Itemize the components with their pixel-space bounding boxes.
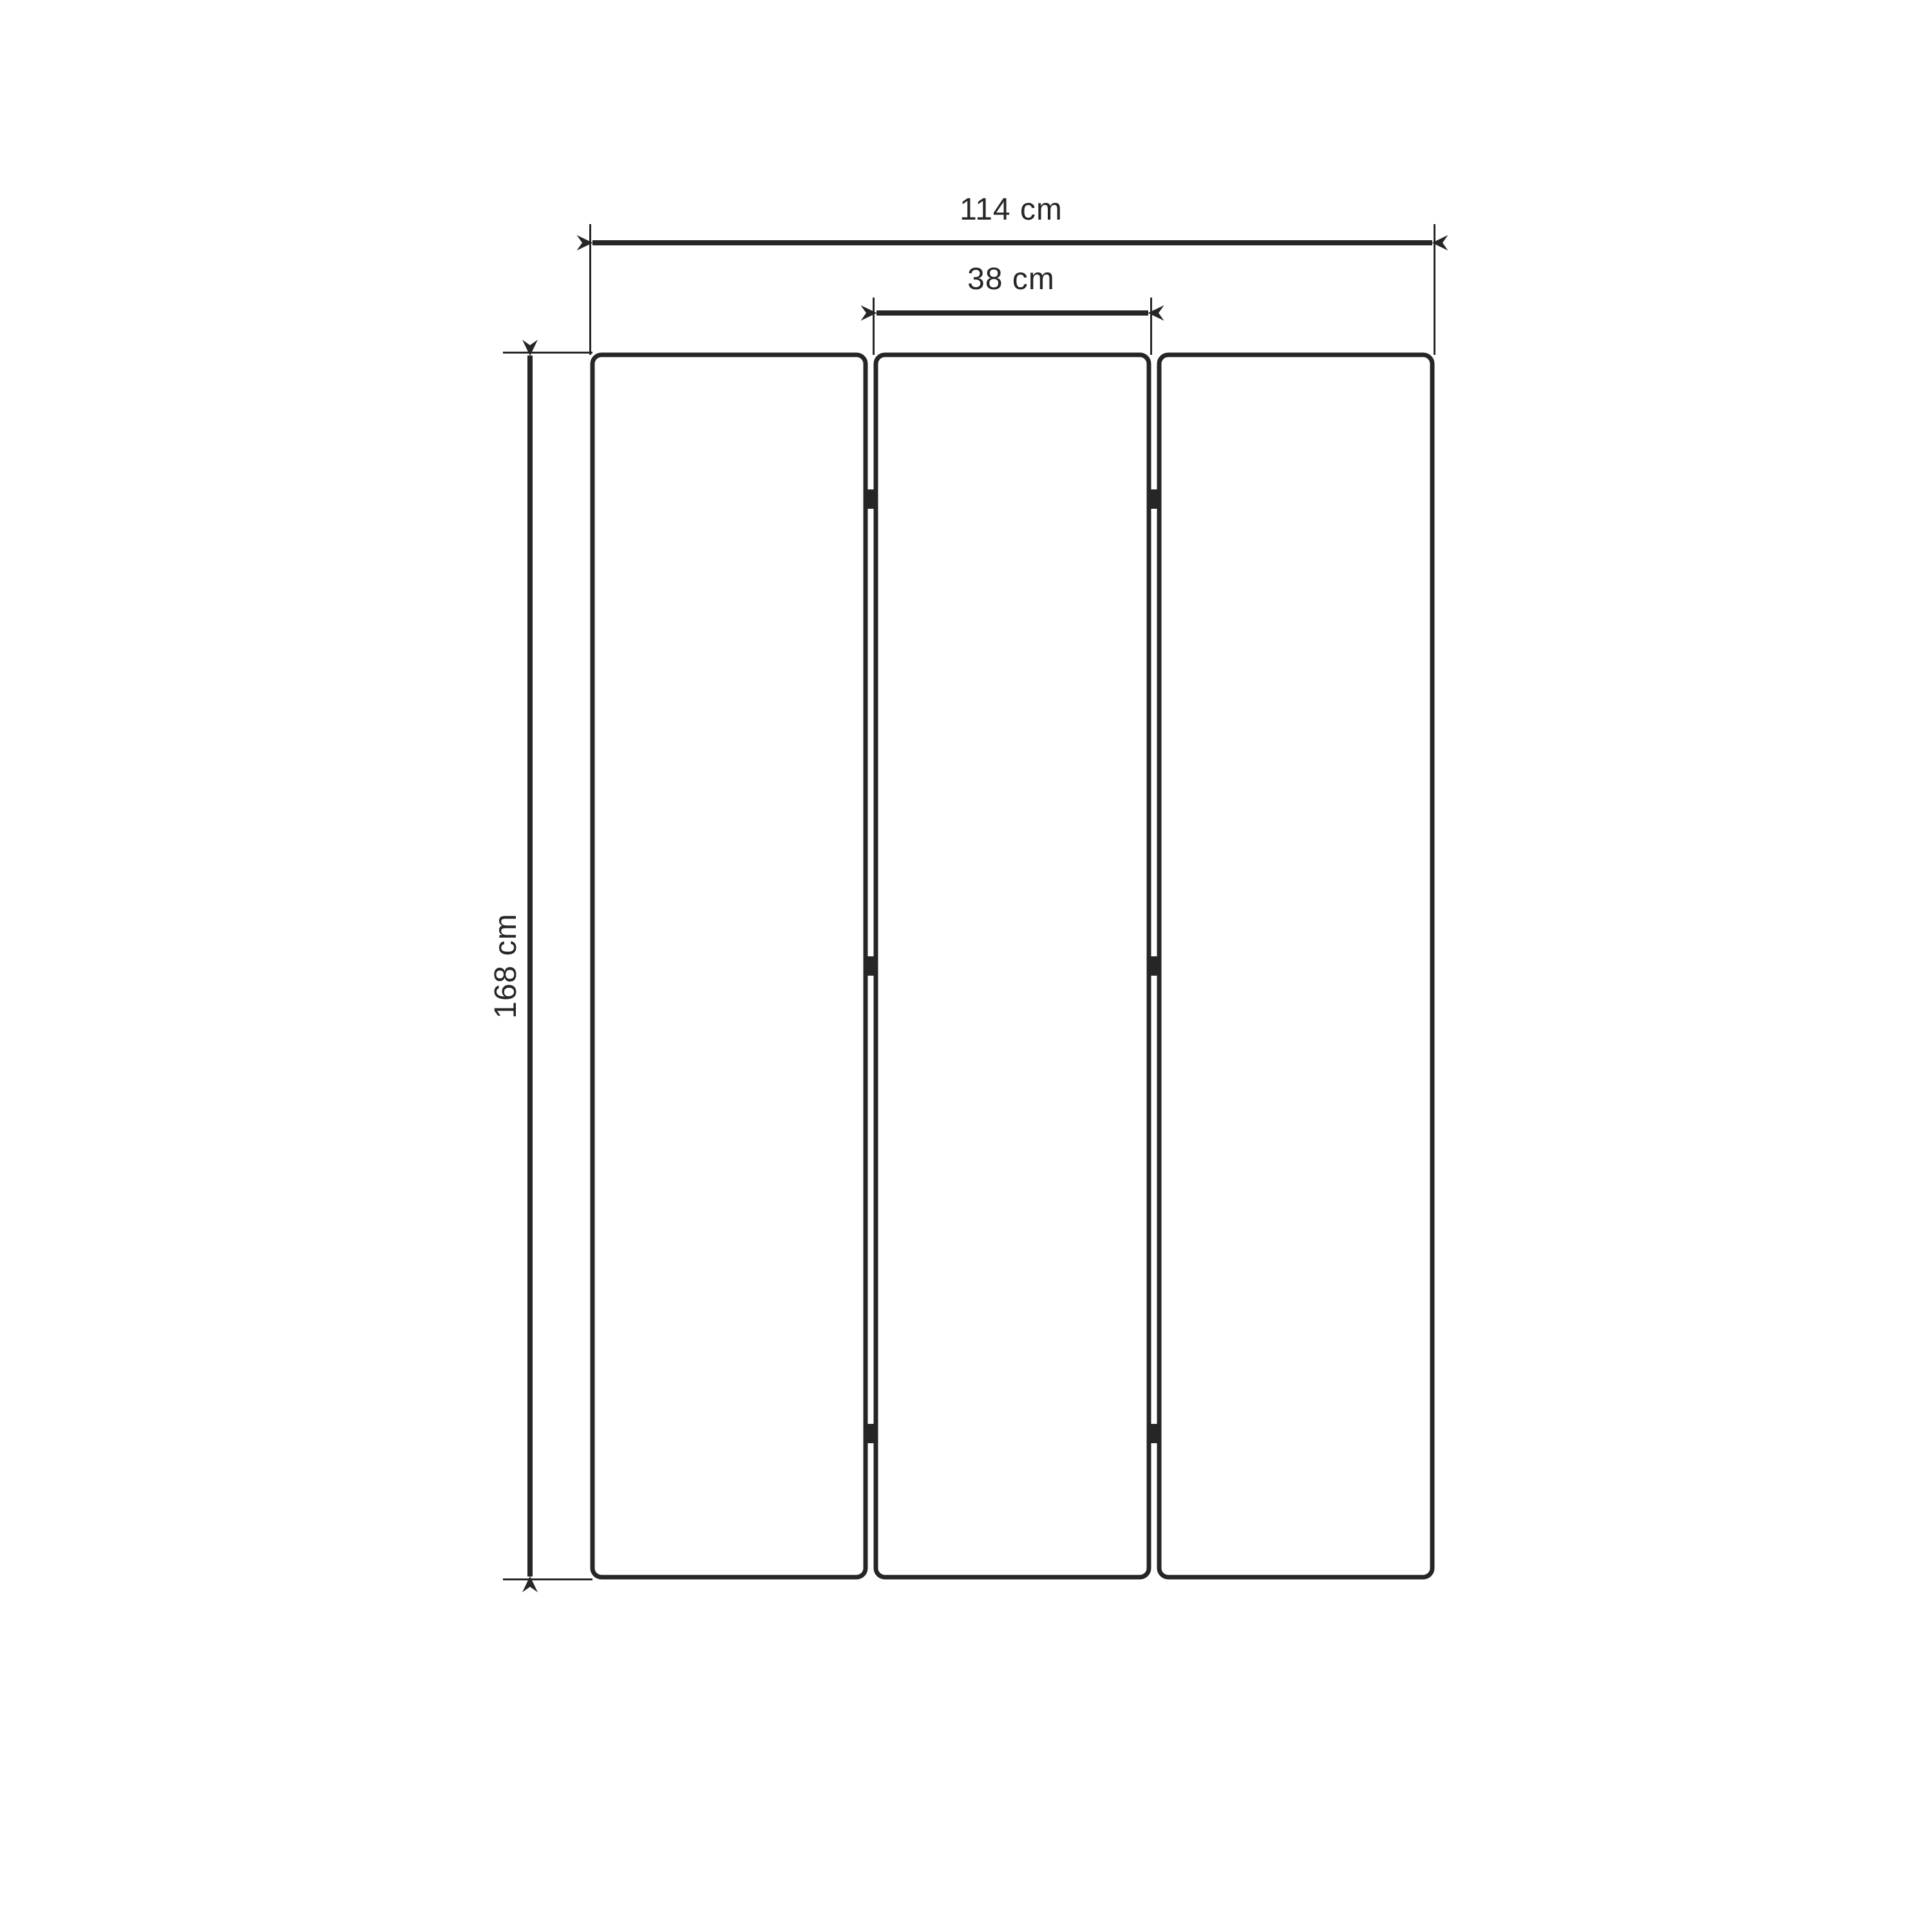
panel-width-label: 38 cm xyxy=(967,264,1055,295)
panel-width-dimension xyxy=(874,298,1151,355)
height-label: 168 cm xyxy=(491,913,522,1018)
hinge-right-middle xyxy=(1148,956,1160,976)
panel-right xyxy=(1159,355,1432,1577)
hinge-right-bottom xyxy=(1148,1424,1160,1443)
dimension-diagram: 114 cm 38 cm 168 cm xyxy=(0,0,1932,1932)
hinge-left-middle xyxy=(864,956,877,976)
hinge-left-top xyxy=(864,489,877,509)
hinge-right-top xyxy=(1148,489,1160,509)
panel-left xyxy=(592,355,866,1577)
total-width-label: 114 cm xyxy=(960,194,1063,225)
hinge-left-bottom xyxy=(864,1424,877,1443)
panel-drawing xyxy=(0,0,1932,1932)
panel-middle xyxy=(876,355,1149,1577)
